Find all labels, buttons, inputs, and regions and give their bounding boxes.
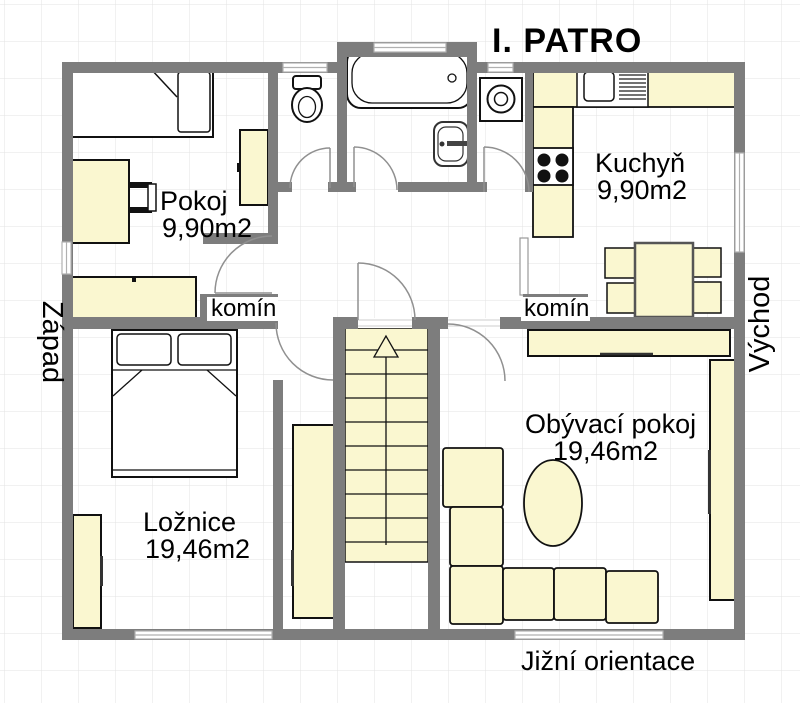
bathtub-drain	[448, 74, 456, 82]
stove-burner	[538, 170, 551, 183]
wall-stairs-left	[333, 317, 345, 640]
staircase	[345, 328, 428, 562]
room-area: 9,90m2	[162, 213, 252, 243]
stove-burner	[556, 154, 569, 167]
sofa-seat	[450, 566, 503, 624]
room-label-kuchyn: Kuchyň 9,90m2	[595, 148, 687, 205]
page-title: I. PATRO	[492, 22, 642, 60]
loznice-cabinet-handle	[100, 556, 103, 586]
stove-burner	[556, 170, 569, 183]
wall-wash-stub	[477, 182, 487, 192]
wall-stairs-right	[428, 317, 440, 640]
wardrobe-handle	[291, 550, 294, 586]
bed-pillow	[178, 72, 210, 132]
orientation-east: Východ	[744, 276, 776, 373]
pokoj-shelf	[72, 277, 196, 318]
bed-pillow-left	[117, 334, 171, 365]
wall-wc-stub-right	[328, 182, 347, 192]
sideboard-top	[528, 330, 730, 356]
sofa-seat	[443, 448, 503, 507]
wall-pokoj-right	[268, 62, 278, 244]
chimney-label-left: komín	[207, 295, 278, 322]
washing-machine	[480, 78, 522, 121]
wall-divider-5	[588, 317, 745, 329]
wall-bath-wash	[467, 42, 477, 192]
floor-plan-page: I. PATRO Pokoj 9,90m2 Kuchyň 9,90m2 Ložn…	[0, 0, 800, 703]
wall-wash-kitchen	[525, 62, 533, 192]
pokoj-cabinet-handle	[237, 163, 240, 172]
kitchen-chair	[693, 282, 721, 313]
loznice-cabinet	[73, 515, 101, 628]
sofa-seat	[503, 568, 554, 620]
bath-sink-faucet	[447, 141, 470, 146]
wall-loznice-right	[273, 380, 283, 640]
chimney-label-right: komín	[521, 295, 590, 322]
room-name: Pokoj	[160, 186, 228, 216]
cabinet-right	[710, 360, 738, 600]
orientation-west: Západ	[36, 301, 68, 383]
sofa-seat	[450, 507, 503, 566]
floor-plan-drawing: I. PATRO Pokoj 9,90m2 Kuchyň 9,90m2 Ložn…	[0, 0, 800, 703]
kitchen-table	[635, 243, 693, 317]
kitchen-chair	[607, 283, 635, 313]
bath-sink-drain	[440, 142, 445, 147]
kitchen-drainer	[619, 75, 646, 99]
chimney-text: komín	[211, 295, 276, 322]
room-name: Obývací pokoj	[525, 409, 696, 439]
wardrobe	[293, 425, 335, 618]
bed-pillow-right	[178, 334, 231, 365]
chimney-text: komín	[524, 295, 589, 322]
room-area: 19,46m2	[553, 436, 658, 466]
wall-top-right	[477, 62, 745, 73]
kitchen-chair	[605, 248, 635, 278]
wall-wc-bath	[337, 42, 347, 192]
stove-burner	[538, 154, 551, 167]
sofa-seat	[554, 568, 606, 620]
pokoj-cabinet	[240, 130, 268, 205]
orientation-south: Jižní orientace	[521, 646, 695, 676]
pokoj-shelf-notch	[132, 277, 136, 282]
room-label-loznice: Ložnice 19,46m2	[143, 507, 250, 564]
room-area: 19,46m2	[145, 534, 250, 564]
kitchen-wall-strip	[520, 238, 528, 295]
room-area: 9,90m2	[597, 175, 687, 205]
sofa-seat	[606, 571, 658, 623]
room-name: Ložnice	[143, 507, 236, 537]
coffee-table	[524, 460, 582, 546]
wc-fixtures	[292, 76, 322, 122]
kitchen-sink	[584, 72, 614, 101]
cabinet-right-handle	[708, 450, 711, 514]
wall-bath-bottom	[398, 182, 477, 192]
desk-chair-back	[148, 184, 156, 211]
room-name: Kuchyň	[595, 148, 685, 178]
washing-room-fixtures	[480, 78, 522, 121]
desk	[71, 160, 129, 243]
kitchen-chair	[693, 248, 721, 277]
